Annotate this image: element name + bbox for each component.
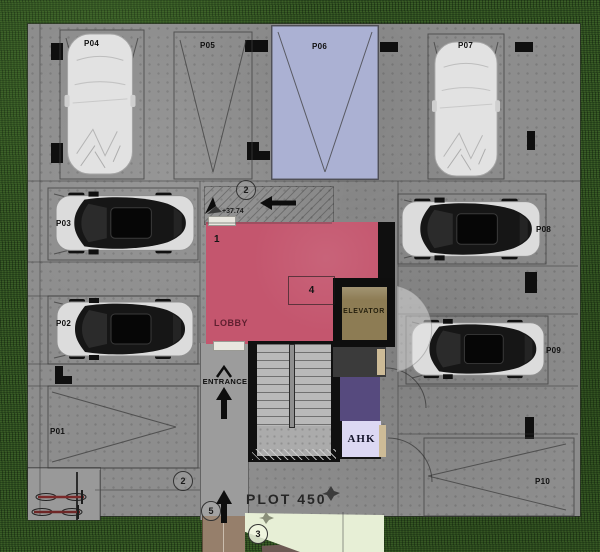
door-swing-arcs xyxy=(386,368,432,482)
plan-linework-over xyxy=(0,0,600,552)
site-plan: AHK xyxy=(0,0,600,552)
plant-glyphs xyxy=(259,486,340,524)
entrance-arrow-icon xyxy=(216,387,232,419)
exit-arrow-icon xyxy=(216,490,232,523)
elevator-door-swing xyxy=(397,286,432,372)
north-arrow-icon xyxy=(205,197,222,214)
left-arrow xyxy=(260,196,296,210)
bicycles xyxy=(32,472,86,520)
entrance-chevron-icon xyxy=(217,367,231,377)
